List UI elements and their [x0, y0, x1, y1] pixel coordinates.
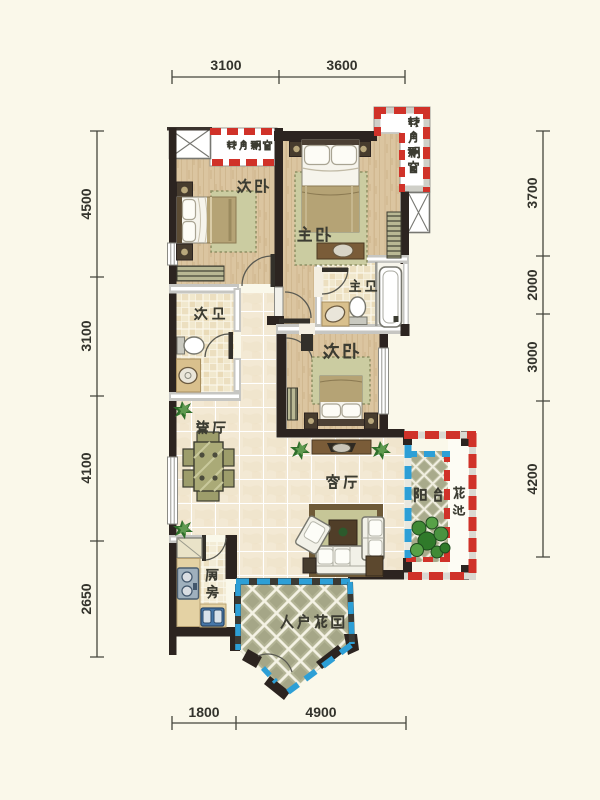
svg-text:3100: 3100	[78, 320, 94, 351]
svg-text:1800: 1800	[188, 704, 219, 720]
svg-text:4500: 4500	[78, 188, 94, 219]
svg-text:3600: 3600	[326, 57, 357, 73]
svg-text:4900: 4900	[305, 704, 336, 720]
svg-text:4200: 4200	[524, 463, 540, 494]
svg-text:4100: 4100	[78, 452, 94, 483]
svg-text:3000: 3000	[524, 341, 540, 372]
svg-text:2000: 2000	[524, 269, 540, 300]
svg-text:2650: 2650	[78, 583, 94, 614]
svg-text:3100: 3100	[210, 57, 241, 73]
svg-text:3700: 3700	[524, 177, 540, 208]
